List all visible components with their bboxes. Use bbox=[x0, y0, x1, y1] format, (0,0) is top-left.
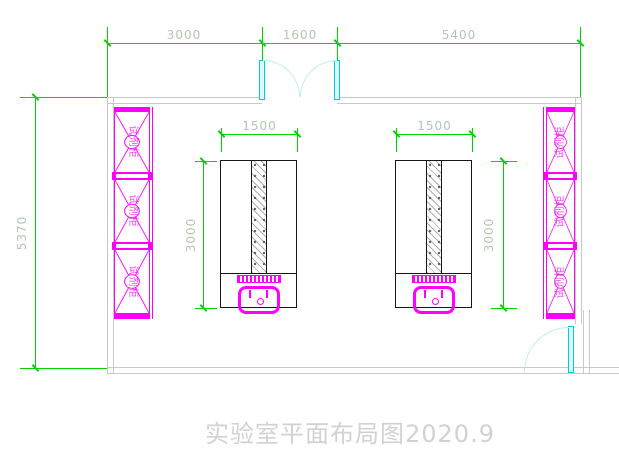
door-swing-arc-right bbox=[300, 60, 337, 97]
dim-label-bench-width: 1500 bbox=[221, 119, 298, 133]
drawing-title: 实验室平面布局图2020.9 bbox=[190, 419, 510, 449]
cabinet-label: 试剂柜 bbox=[126, 261, 138, 303]
bench-partition-strip bbox=[426, 161, 442, 273]
dim-label-bench-depth: 3000 bbox=[482, 208, 496, 262]
dim-label-top-2: 1600 bbox=[270, 28, 330, 42]
sink-grill bbox=[412, 275, 456, 283]
dim-ext-left-bottom bbox=[20, 368, 107, 369]
basin-tap bbox=[441, 290, 443, 298]
cabinet-label: 试剂柜 bbox=[555, 121, 567, 163]
door-swing-arc-left bbox=[263, 60, 300, 97]
cabinet-cell: 试剂柜 bbox=[114, 112, 150, 172]
dim-label-top-1: 3000 bbox=[154, 28, 214, 42]
bench-partition-strip bbox=[251, 161, 267, 273]
dim-line-bench-depth bbox=[203, 161, 204, 309]
bench-divider bbox=[396, 273, 471, 274]
door-swing-arc-side bbox=[524, 327, 569, 372]
cabinet-cell: 试剂柜 bbox=[546, 112, 575, 172]
cabinet-label: 试剂柜 bbox=[126, 190, 138, 232]
cabinet-shelf-divider bbox=[546, 172, 575, 180]
cabinet-cell: 试剂柜 bbox=[546, 250, 575, 313]
dim-line-top bbox=[107, 43, 581, 44]
lab-bench-right: 1500 3000 bbox=[395, 160, 472, 308]
reagent-cabinet-left: 试剂柜 试剂柜 试剂柜 bbox=[114, 107, 150, 319]
sink-basin bbox=[413, 286, 455, 314]
basin-drain bbox=[257, 298, 264, 305]
dim-label-bench-width: 1500 bbox=[396, 119, 473, 133]
wall-right-door-stub bbox=[583, 310, 590, 374]
dim-label-bench-depth: 3000 bbox=[184, 208, 198, 262]
cabinet-shelf-divider bbox=[114, 172, 150, 180]
cabinet-cell: 试剂柜 bbox=[114, 180, 150, 242]
dim-label-top-3: 5400 bbox=[429, 28, 489, 42]
cabinet-label: 试剂柜 bbox=[555, 190, 567, 232]
dim-line-bench-width bbox=[396, 134, 473, 135]
floorplan-canvas: 3000 1600 5400 5370 试剂柜 bbox=[0, 0, 619, 469]
dim-line-left bbox=[35, 97, 36, 368]
dim-line-bench-depth bbox=[503, 161, 504, 309]
sink-grill bbox=[237, 275, 281, 283]
cabinet-label: 试剂柜 bbox=[555, 261, 567, 303]
lab-bench-left: 1500 3000 bbox=[220, 160, 297, 308]
basin-tap bbox=[249, 290, 251, 298]
reagent-cabinet-right: 试剂柜 试剂柜 试剂柜 bbox=[546, 107, 575, 319]
cabinet-cell: 试剂柜 bbox=[114, 250, 150, 313]
cabinet-shelf-divider bbox=[546, 242, 575, 250]
basin-tap bbox=[424, 290, 426, 298]
wall-top-left-segment bbox=[107, 97, 262, 104]
wall-right-upper bbox=[575, 97, 582, 324]
cabinet-label: 试剂柜 bbox=[126, 121, 138, 163]
dim-line-bench-width bbox=[221, 134, 298, 135]
basin-tap bbox=[266, 290, 268, 298]
cabinet-cell: 试剂柜 bbox=[546, 180, 575, 242]
dim-ext-top-left bbox=[107, 27, 108, 97]
dim-ext-top-right bbox=[580, 27, 581, 97]
dim-label-left: 5370 bbox=[15, 206, 29, 260]
wall-top-right-segment bbox=[337, 97, 582, 104]
wall-left bbox=[107, 97, 114, 374]
dim-ext-left-top bbox=[20, 97, 107, 98]
cabinet-end-bar bbox=[114, 313, 150, 319]
basin-drain bbox=[432, 298, 439, 305]
cabinet-end-bar bbox=[546, 313, 575, 319]
bench-divider bbox=[221, 273, 296, 274]
cabinet-shelf-divider bbox=[114, 242, 150, 250]
sink-basin bbox=[238, 286, 280, 314]
